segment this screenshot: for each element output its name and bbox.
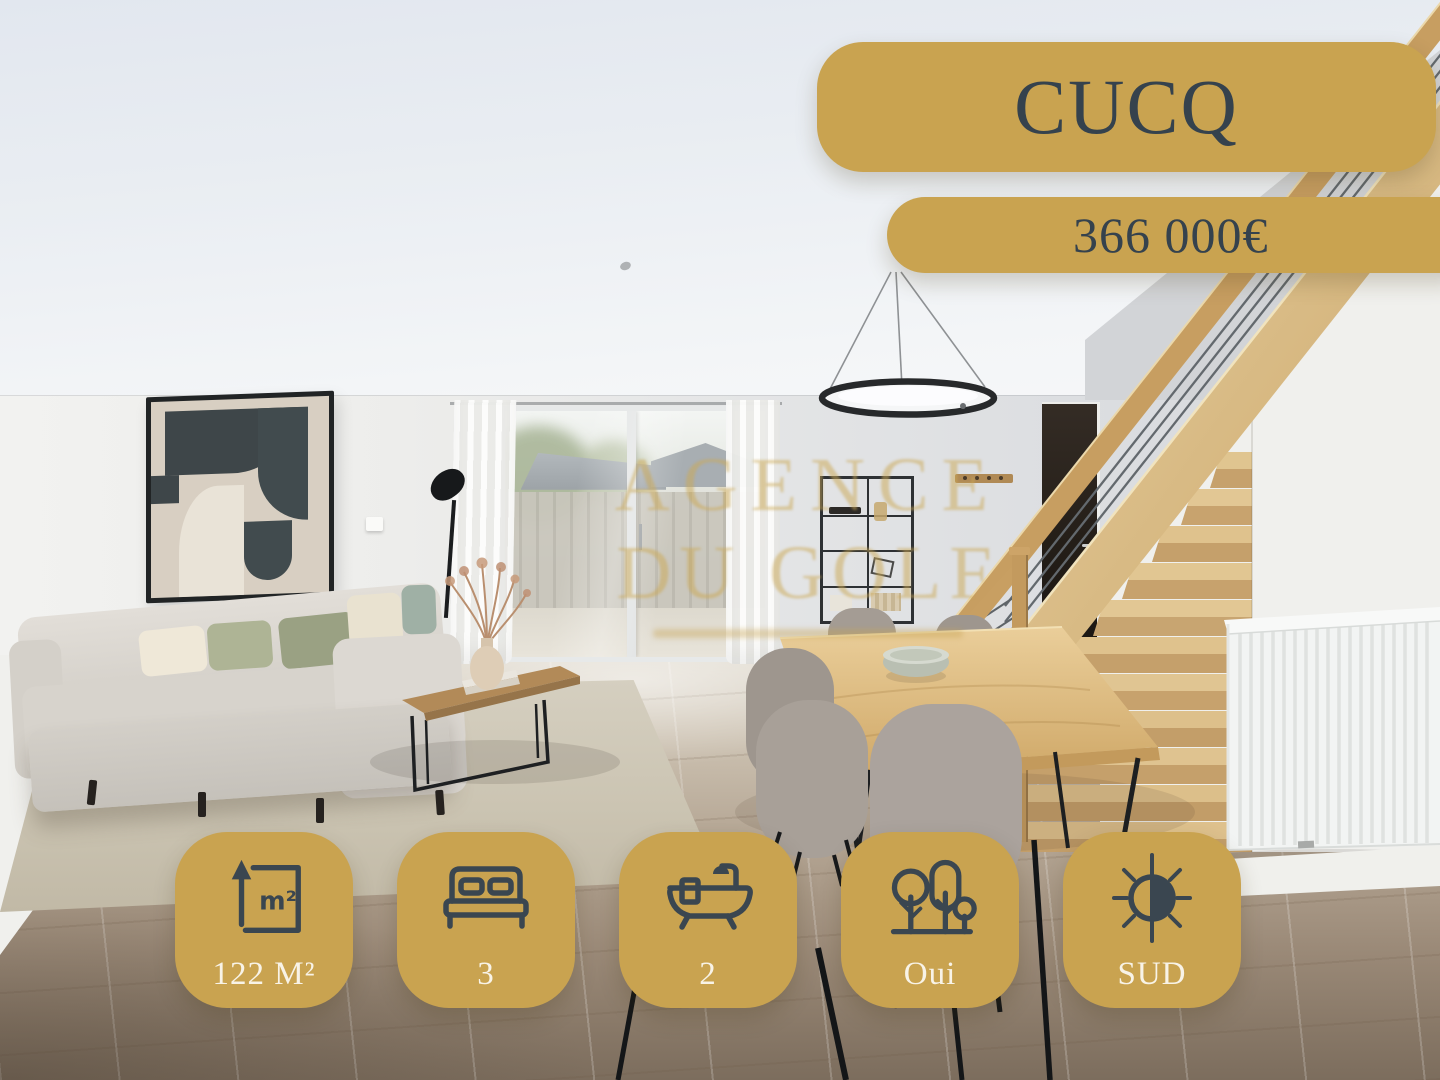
feature-bathrooms: 2 [619,832,797,1008]
feature-area-label: 122 M² [213,950,316,1008]
vase-dried-flowers [445,558,531,691]
feature-garden: Oui [841,832,1019,1008]
price-badge: 366 000€ [887,197,1440,273]
price-value: 366 000€ [1073,206,1269,264]
coffee-table [370,558,620,791]
feature-bedrooms-label: 3 [477,950,495,1008]
feature-garden-label: Oui [904,950,957,1008]
feature-orientation: SUD [1063,832,1241,1008]
ceramic-bowl [883,646,949,683]
bed-icon [436,846,536,950]
garden-trees-icon [882,846,978,950]
sun-orientation-icon [1106,846,1198,950]
bathtub-icon [658,846,758,950]
svg-text:m²: m² [259,886,297,916]
feature-area: m² 122 M² [175,832,353,1008]
pendant-ring-light [822,272,994,415]
feature-bedrooms: 3 [397,832,575,1008]
city-badge: CUCQ [817,42,1436,172]
city-name: CUCQ [1014,62,1239,152]
area-icon: m² [220,846,308,950]
real-estate-listing-card: AGENCE DU GOLF CUCQ 366 000€ m² 122 M² [0,0,1440,1080]
dining-chair [756,700,868,858]
feature-bathrooms-label: 2 [699,950,717,1008]
feature-orientation-label: SUD [1117,950,1186,1008]
